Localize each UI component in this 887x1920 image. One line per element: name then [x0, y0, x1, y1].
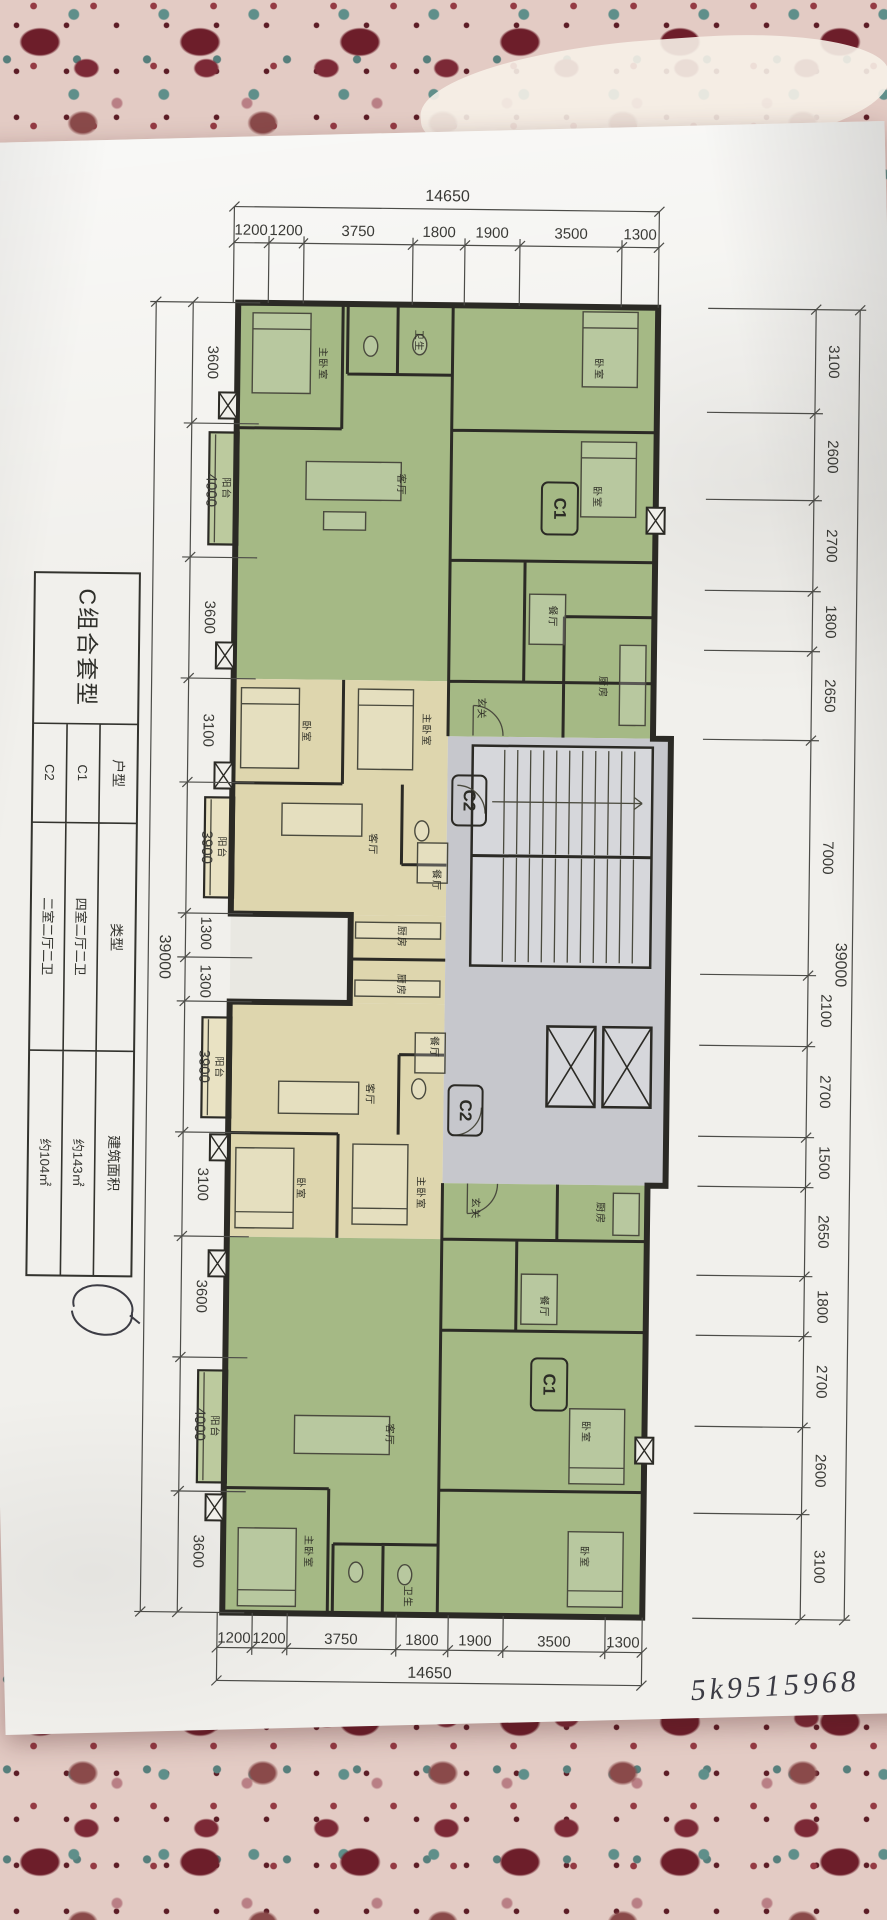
room-label-bedroom: 卧室	[300, 720, 313, 742]
elevator-icon	[602, 1027, 651, 1108]
dim-label: 3900	[198, 830, 215, 864]
room-label-dining: 餐厅	[430, 869, 443, 891]
room-label-master-bedroom: 主卧室	[420, 713, 433, 746]
dim-label: 2100	[817, 994, 834, 1028]
room-label-entry: 玄关	[475, 698, 488, 720]
unit-label-text: C1	[539, 1373, 558, 1395]
dim-label: 4000	[202, 473, 219, 507]
table-cell: 二室二厅二卫	[40, 897, 56, 975]
room-label-master-bedroom: 主卧室	[316, 347, 329, 380]
table-cell: C1	[75, 764, 90, 781]
floor-plan-drawing: C1 C2 C2 C1 主卧室 卫生 卧室 卧室 客厅 餐厅 厨房 玄关 阳台 …	[0, 121, 887, 1735]
dim-label: 1300	[606, 1634, 640, 1651]
table-header: 户型	[110, 759, 126, 787]
dim-total-label: 14650	[425, 188, 470, 206]
dim-label: 1200	[269, 222, 303, 239]
dim-label: 3600	[201, 600, 218, 634]
table-cell: 约104㎡	[37, 1138, 53, 1186]
dimension-chain-right: 3100 2600 2700 1800 2650 7000 2100 2700 …	[692, 303, 866, 1625]
dim-total-label: 39000	[831, 943, 849, 988]
dim-label: 3500	[537, 1633, 571, 1650]
room-label-dining: 餐厅	[546, 605, 559, 627]
hand-drawn-circle	[72, 1285, 141, 1335]
photo-of-floorplan: { "dims": { "top": {"total": "14650", "s…	[0, 0, 887, 1920]
dim-label: 2600	[811, 1454, 828, 1488]
elevator-icon	[546, 1026, 595, 1107]
dim-label: 1300	[197, 916, 214, 950]
dim-label: 1800	[813, 1290, 830, 1324]
dim-label: 1900	[458, 1632, 492, 1649]
room-label-bath: 卫生	[413, 330, 426, 352]
dim-label: 1800	[405, 1632, 439, 1649]
dim-total-label: 39000	[155, 934, 173, 979]
dim-label: 2700	[812, 1365, 829, 1399]
room-label-living: 客厅	[367, 833, 380, 855]
room-label-master-bedroom: 主卧室	[302, 1535, 315, 1568]
unit-type-table: C组合套型 户型 类型 建筑面积 C1 四室二厅二卫 约143㎡ C2 二室二厅…	[26, 572, 149, 1335]
room-label-bedroom: 卧室	[579, 1421, 592, 1443]
dim-label: 3750	[324, 1631, 358, 1648]
room-label-balcony: 阳台	[208, 1415, 221, 1437]
dim-label: 1300	[196, 964, 213, 998]
room-label-balcony: 阳台	[220, 477, 233, 499]
room-label-living: 客厅	[383, 1423, 396, 1445]
dim-label: 3500	[554, 225, 588, 242]
room-label-master-bedroom: 主卧室	[414, 1176, 427, 1209]
dim-label: 3600	[189, 1534, 206, 1568]
dim-label: 1500	[815, 1146, 832, 1180]
room-label-kitchen: 厨房	[596, 676, 609, 698]
stairs	[470, 745, 653, 967]
dim-label: 1200	[217, 1629, 251, 1646]
table-header: 类型	[108, 923, 124, 951]
dim-label: 3100	[825, 345, 842, 379]
dim-label: 3750	[341, 223, 375, 240]
room-label-kitchen: 厨房	[395, 926, 408, 948]
table-cell: 四室二厅二卫	[73, 898, 89, 976]
unit-label-text: C2	[460, 789, 479, 811]
unit-label-text: C1	[550, 498, 569, 520]
dim-total-label: 14650	[407, 1665, 452, 1683]
dim-label: 1300	[623, 226, 657, 243]
room-label-kitchen: 厨房	[395, 974, 408, 996]
dimension-chain-top: 14650 1200 1200 3750 1800 1900 3500 1300	[228, 185, 664, 307]
dim-label: 1800	[822, 605, 839, 639]
table-title: C组合套型	[73, 588, 100, 707]
dim-label: 3600	[204, 345, 221, 379]
floor-plan: C1 C2 C2 C1 主卧室 卫生 卧室 卧室 客厅 餐厅 厨房 玄关 阳台 …	[195, 302, 676, 1618]
dim-label: 2700	[823, 529, 840, 563]
room-label-balcony: 阳台	[213, 1056, 226, 1078]
dim-label: 2700	[816, 1075, 833, 1109]
dim-label: 3900	[195, 1049, 212, 1083]
paper-sheet: C1 C2 C2 C1 主卧室 卫生 卧室 卧室 客厅 餐厅 厨房 玄关 阳台 …	[0, 121, 887, 1735]
room-label-bedroom: 卧室	[592, 358, 605, 380]
room-label-dining: 餐厅	[538, 1295, 551, 1317]
dim-label: 2650	[821, 679, 838, 713]
room-label-bedroom: 卧室	[578, 1546, 591, 1568]
table-cell: 约143㎡	[70, 1139, 86, 1187]
room-label-kitchen: 厨房	[594, 1202, 607, 1224]
dim-label: 3100	[810, 1550, 827, 1584]
dim-label: 1800	[422, 224, 456, 241]
dim-label: 1200	[234, 222, 268, 239]
dim-label: 3100	[194, 1167, 211, 1201]
dimension-chain-bottom: 1200 1200 3750 1800 1900 3500 1300 14650	[211, 1612, 647, 1690]
dim-label: 1200	[252, 1630, 286, 1647]
room-label-bedroom: 卧室	[294, 1177, 307, 1199]
room-label-living: 客厅	[395, 474, 408, 496]
room-label-living: 客厅	[363, 1083, 376, 1105]
table-cell: C2	[42, 764, 57, 781]
dim-label: 3100	[199, 713, 216, 747]
dim-label: 1900	[475, 224, 509, 241]
room-label-bath: 卫生	[401, 1586, 414, 1608]
dim-label: 3600	[192, 1279, 209, 1313]
dim-label: 7000	[819, 841, 836, 875]
unit-label-text: C2	[456, 1099, 475, 1121]
room-label-balcony: 阳台	[215, 836, 228, 858]
handwritten-number: 5k9515968	[690, 1665, 861, 1708]
table-header: 建筑面积	[105, 1135, 122, 1191]
dim-label: 2650	[814, 1215, 831, 1249]
room-label-entry: 玄关	[469, 1197, 482, 1219]
room-label-bedroom: 卧室	[591, 486, 604, 508]
dim-label: 2600	[824, 440, 841, 474]
room-label-dining: 餐厅	[428, 1036, 441, 1058]
dim-label: 4000	[191, 1407, 208, 1441]
